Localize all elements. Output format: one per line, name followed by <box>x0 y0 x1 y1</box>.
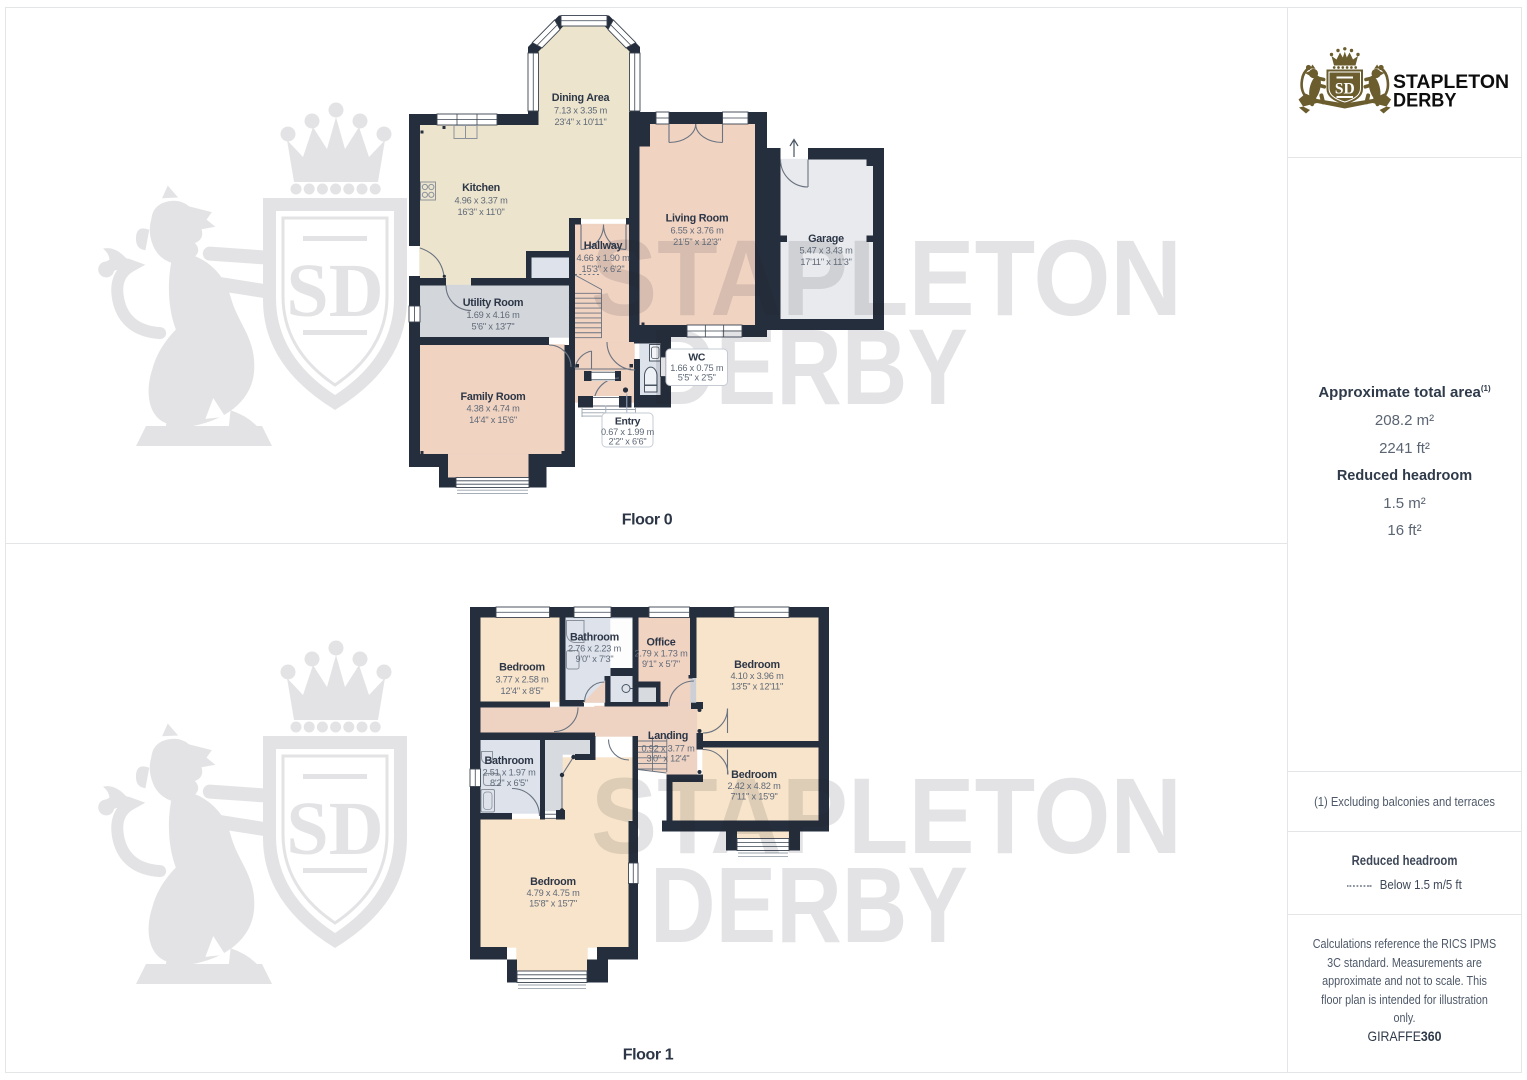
svg-text:7.13 x 3.35 m: 7.13 x 3.35 m <box>554 106 608 116</box>
svg-text:Bedroom: Bedroom <box>731 769 777 781</box>
svg-text:14'4" x 15'6": 14'4" x 15'6" <box>469 415 517 425</box>
svg-text:23'4" x 10'11": 23'4" x 10'11" <box>554 117 606 127</box>
svg-text:SD: SD <box>1335 81 1355 98</box>
svg-text:5'5" x 2'5": 5'5" x 2'5" <box>678 373 716 383</box>
svg-text:Entry: Entry <box>615 417 641 428</box>
svg-text:4.66 x 1.90 m: 4.66 x 1.90 m <box>576 253 630 263</box>
svg-text:Landing: Landing <box>648 730 688 742</box>
svg-text:4.96 x 3.37 m: 4.96 x 3.37 m <box>454 196 508 206</box>
svg-text:Bathroom: Bathroom <box>570 632 619 644</box>
svg-text:3.77 x 2.58 m: 3.77 x 2.58 m <box>495 675 549 685</box>
svg-text:Kitchen: Kitchen <box>462 182 500 194</box>
svg-text:Dining Area: Dining Area <box>552 92 611 104</box>
svg-text:Living Room: Living Room <box>666 213 729 225</box>
svg-text:Office: Office <box>646 637 675 649</box>
svg-text:4.38 x 4.74 m: 4.38 x 4.74 m <box>466 404 520 414</box>
svg-text:Utility Room: Utility Room <box>463 297 524 309</box>
svg-text:0.67 x 1.99 m: 0.67 x 1.99 m <box>601 427 655 437</box>
svg-text:2'2" x 6'6": 2'2" x 6'6" <box>609 437 647 447</box>
svg-text:6.55 x 3.76 m: 6.55 x 3.76 m <box>670 226 724 236</box>
svg-text:Bedroom: Bedroom <box>734 659 780 671</box>
svg-text:7'11" x 15'9": 7'11" x 15'9" <box>730 792 777 802</box>
svg-text:15'8" x 15'7": 15'8" x 15'7" <box>529 899 577 909</box>
svg-text:4.10 x 3.96 m: 4.10 x 3.96 m <box>730 671 784 681</box>
svg-text:4.79 x 4.75 m: 4.79 x 4.75 m <box>526 888 580 898</box>
svg-text:0.92 x 3.77 m: 0.92 x 3.77 m <box>641 744 695 754</box>
svg-text:15'3" x 6'2": 15'3" x 6'2" <box>582 264 625 274</box>
svg-text:5'6" x 13'7": 5'6" x 13'7" <box>472 322 515 332</box>
svg-text:5.47 x 3.43 m: 5.47 x 3.43 m <box>799 246 853 256</box>
svg-text:3'0" x 12'4": 3'0" x 12'4" <box>647 754 690 764</box>
svg-text:Family Room: Family Room <box>460 391 525 403</box>
svg-text:1.66 x 0.75 m: 1.66 x 0.75 m <box>670 363 724 373</box>
svg-text:9'0" x 7'3": 9'0" x 7'3" <box>576 654 614 664</box>
svg-text:2.79 x 1.73 m: 2.79 x 1.73 m <box>634 649 688 659</box>
svg-text:WC: WC <box>688 353 706 364</box>
svg-text:21'5" x 12'3": 21'5" x 12'3" <box>673 237 721 247</box>
svg-text:Bedroom: Bedroom <box>499 662 545 674</box>
svg-text:8'2" x 6'5": 8'2" x 6'5" <box>490 778 528 788</box>
svg-text:12'4" x 8'5": 12'4" x 8'5" <box>501 686 544 696</box>
svg-text:9'1" x 5'7": 9'1" x 5'7" <box>642 659 680 669</box>
svg-text:16'3" x 11'0": 16'3" x 11'0" <box>457 207 504 217</box>
svg-text:13'5" x 12'11": 13'5" x 12'11" <box>731 682 783 692</box>
svg-text:Garage: Garage <box>808 233 844 245</box>
svg-text:Bedroom: Bedroom <box>530 876 576 888</box>
svg-text:17'11" x 11'3": 17'11" x 11'3" <box>800 257 851 267</box>
svg-text:2.76 x 2.23 m: 2.76 x 2.23 m <box>568 644 622 654</box>
svg-text:Hallway: Hallway <box>584 240 623 252</box>
svg-text:Bathroom: Bathroom <box>485 755 534 767</box>
svg-text:2.51 x 1.97 m: 2.51 x 1.97 m <box>482 768 536 778</box>
svg-text:Floor 1: Floor 1 <box>623 1047 674 1064</box>
svg-text:2.42 x 4.82 m: 2.42 x 4.82 m <box>727 781 781 791</box>
svg-text:Floor 0: Floor 0 <box>622 512 673 529</box>
svg-text:1.69 x 4.16 m: 1.69 x 4.16 m <box>466 310 520 320</box>
svg-text:DERBY: DERBY <box>1393 91 1457 112</box>
